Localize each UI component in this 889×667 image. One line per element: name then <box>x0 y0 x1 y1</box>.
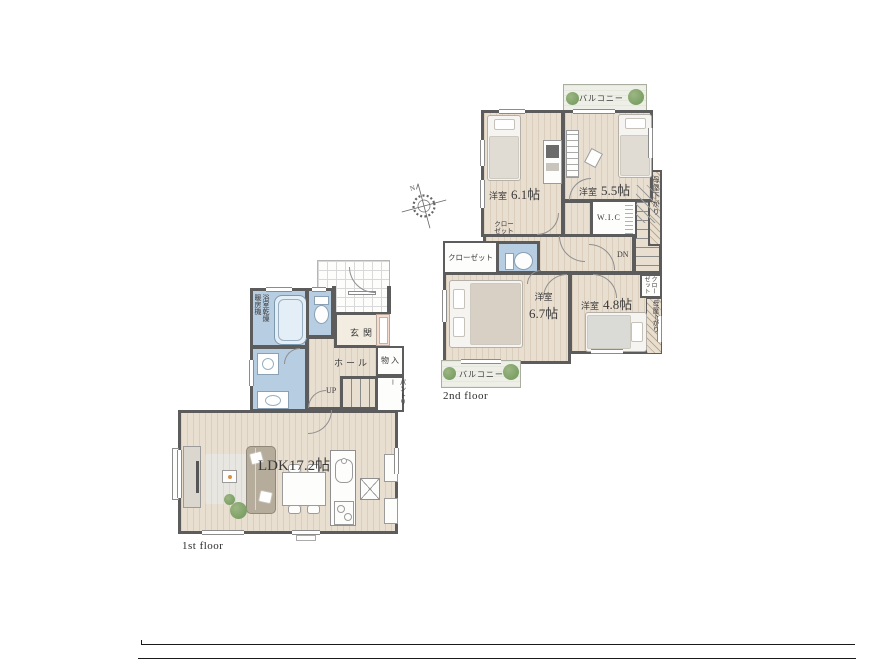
toilet-tank <box>314 296 329 305</box>
shoe-cabinet <box>376 314 390 346</box>
toilet-1f <box>306 288 334 338</box>
shoe-cabinet-inner <box>379 317 388 344</box>
kitchen-counter <box>330 450 356 526</box>
entrance-label: 玄関 <box>350 326 376 339</box>
tv-board <box>183 446 201 508</box>
window <box>480 180 485 208</box>
bed-blanket <box>587 315 631 349</box>
staircase-up <box>340 376 378 410</box>
coffee-table <box>222 470 237 483</box>
bedroom-6-7-label: 洋室 6.7帖 <box>529 290 558 322</box>
bed-5-5 <box>618 114 652 178</box>
bathroom-dryer-col1: 浴室乾燥 <box>262 294 270 344</box>
window <box>499 109 525 114</box>
closet-4-8-label-col2: ゼット <box>642 276 649 296</box>
closet-6-1-label-line2: ゼット <box>488 228 520 235</box>
stove <box>334 501 354 525</box>
bed-pillow <box>453 289 465 309</box>
balcony-door <box>461 359 501 364</box>
window <box>249 360 254 386</box>
bed-4-8 <box>585 312 647 352</box>
table-flower <box>228 475 232 479</box>
moya-upper-label: 母屋下がり <box>651 176 661 242</box>
shelf-5-5 <box>566 130 579 178</box>
stairs-up-label: UP <box>326 386 336 395</box>
room-size: 4.8帖 <box>603 297 632 312</box>
compass-north-label: N <box>409 184 416 193</box>
kitchen-sink <box>335 459 353 483</box>
room-type: 洋室 <box>489 191 507 201</box>
window <box>312 287 326 292</box>
second-floor-caption: 2nd floor <box>443 390 488 402</box>
desk-chair <box>546 163 559 171</box>
vanity-sink <box>257 391 289 409</box>
wic-label: W.I.C <box>597 213 621 222</box>
toilet-bowl-icon <box>314 305 329 324</box>
bottom-rule-2 <box>138 658 856 659</box>
room-size: 5.5帖 <box>601 183 630 198</box>
stairs-down-label: DN <box>617 250 629 259</box>
plant-icon <box>566 92 579 105</box>
faucet <box>341 458 347 464</box>
window <box>266 287 292 292</box>
dining-chair <box>288 505 301 514</box>
floorplan-canvas: N バルコニー クロー ゼット <box>0 0 889 667</box>
dining-table <box>282 472 326 506</box>
burner <box>344 513 352 521</box>
vanity-basin <box>265 395 281 406</box>
plant-icon <box>628 89 644 105</box>
room-type: 洋室 <box>529 290 558 303</box>
wall <box>387 286 391 314</box>
bathtub-inner <box>278 299 303 341</box>
closet-6-1-label: クロー ゼット <box>488 221 520 235</box>
bottom-rule-1 <box>141 640 855 645</box>
washing-machine <box>257 353 279 375</box>
wall <box>332 286 336 314</box>
closet-4-8-label-col1: クロー <box>649 276 656 296</box>
desk-monitor <box>546 145 559 158</box>
plant-icon <box>503 364 519 380</box>
balcony-door <box>573 109 615 114</box>
room-type: 洋室 <box>581 301 599 311</box>
bed-blanket <box>470 283 521 345</box>
closet-6-1-label-line1: クロー <box>488 221 520 228</box>
cupboard <box>384 498 398 524</box>
upper-corridor <box>562 200 593 238</box>
toilet-tank <box>505 253 514 270</box>
ldk-label: LDK17.2帖 <box>258 454 330 475</box>
terrace-step <box>296 535 316 541</box>
bed-6-7 <box>449 280 523 348</box>
bed-pillow <box>631 322 643 342</box>
plant-icon <box>230 502 247 519</box>
toilet-bowl-icon <box>514 252 533 270</box>
balcony-top-label: バルコニー <box>579 93 624 104</box>
desk-6-1 <box>543 140 562 184</box>
bathtub <box>274 295 307 345</box>
window <box>442 290 447 322</box>
dining-chair <box>307 505 320 514</box>
first-floor-plan: 浴室乾燥 暖房機 玄関 ホール 物入 UP パントリー LDK17.2帖 1st… <box>172 258 412 558</box>
hall-closet-label: クローゼット <box>448 252 493 263</box>
bathroom-dryer-label: 浴室乾燥 暖房機 <box>254 294 270 344</box>
terrace-door <box>292 530 320 535</box>
bed-blanket <box>489 136 519 179</box>
compass-north-icon: N <box>400 176 448 232</box>
window <box>202 530 244 535</box>
bathroom-dryer-col2: 暖房機 <box>254 294 262 344</box>
moya-lower-label: 母屋下がり <box>649 300 659 352</box>
pantry-label: パントリー <box>386 379 406 411</box>
window <box>177 450 182 498</box>
window <box>480 140 485 166</box>
first-floor-caption: 1st floor <box>182 540 223 552</box>
window <box>648 128 653 158</box>
tv <box>196 461 199 493</box>
bed-pillow <box>625 118 646 129</box>
hall-label: ホール <box>330 356 374 369</box>
bed-pillow <box>494 119 515 130</box>
bedroom-6-1-label: 洋室 6.1帖 <box>489 184 540 204</box>
room-size: 6.7帖 <box>529 303 558 322</box>
window <box>394 448 399 474</box>
storage-label: 物入 <box>381 355 401 366</box>
toilet-2f <box>496 241 540 274</box>
window <box>591 349 623 354</box>
bed-blanket <box>620 135 650 176</box>
sofa-pillow <box>258 490 273 504</box>
room-size: 6.1帖 <box>511 187 540 202</box>
bed-6-1 <box>487 115 521 181</box>
room-type: 洋室 <box>579 187 597 197</box>
sofa-seam <box>255 448 256 510</box>
washing-machine-drum <box>262 358 274 370</box>
plant-icon <box>443 367 456 380</box>
wic-shelves <box>625 204 633 234</box>
second-floor-plan: バルコニー クロー ゼット バルコニー <box>441 84 673 404</box>
balcony-bottom-label: バルコニー <box>459 369 504 380</box>
bedroom-5-5-label: 洋室 5.5帖 <box>579 180 630 200</box>
bed-pillow <box>453 317 465 337</box>
bedroom-4-8-label: 洋室 4.8帖 <box>581 294 632 314</box>
refrigerator-space <box>360 478 380 500</box>
burner <box>337 505 345 513</box>
closet-4-8-label: クロー ゼット <box>642 276 656 296</box>
